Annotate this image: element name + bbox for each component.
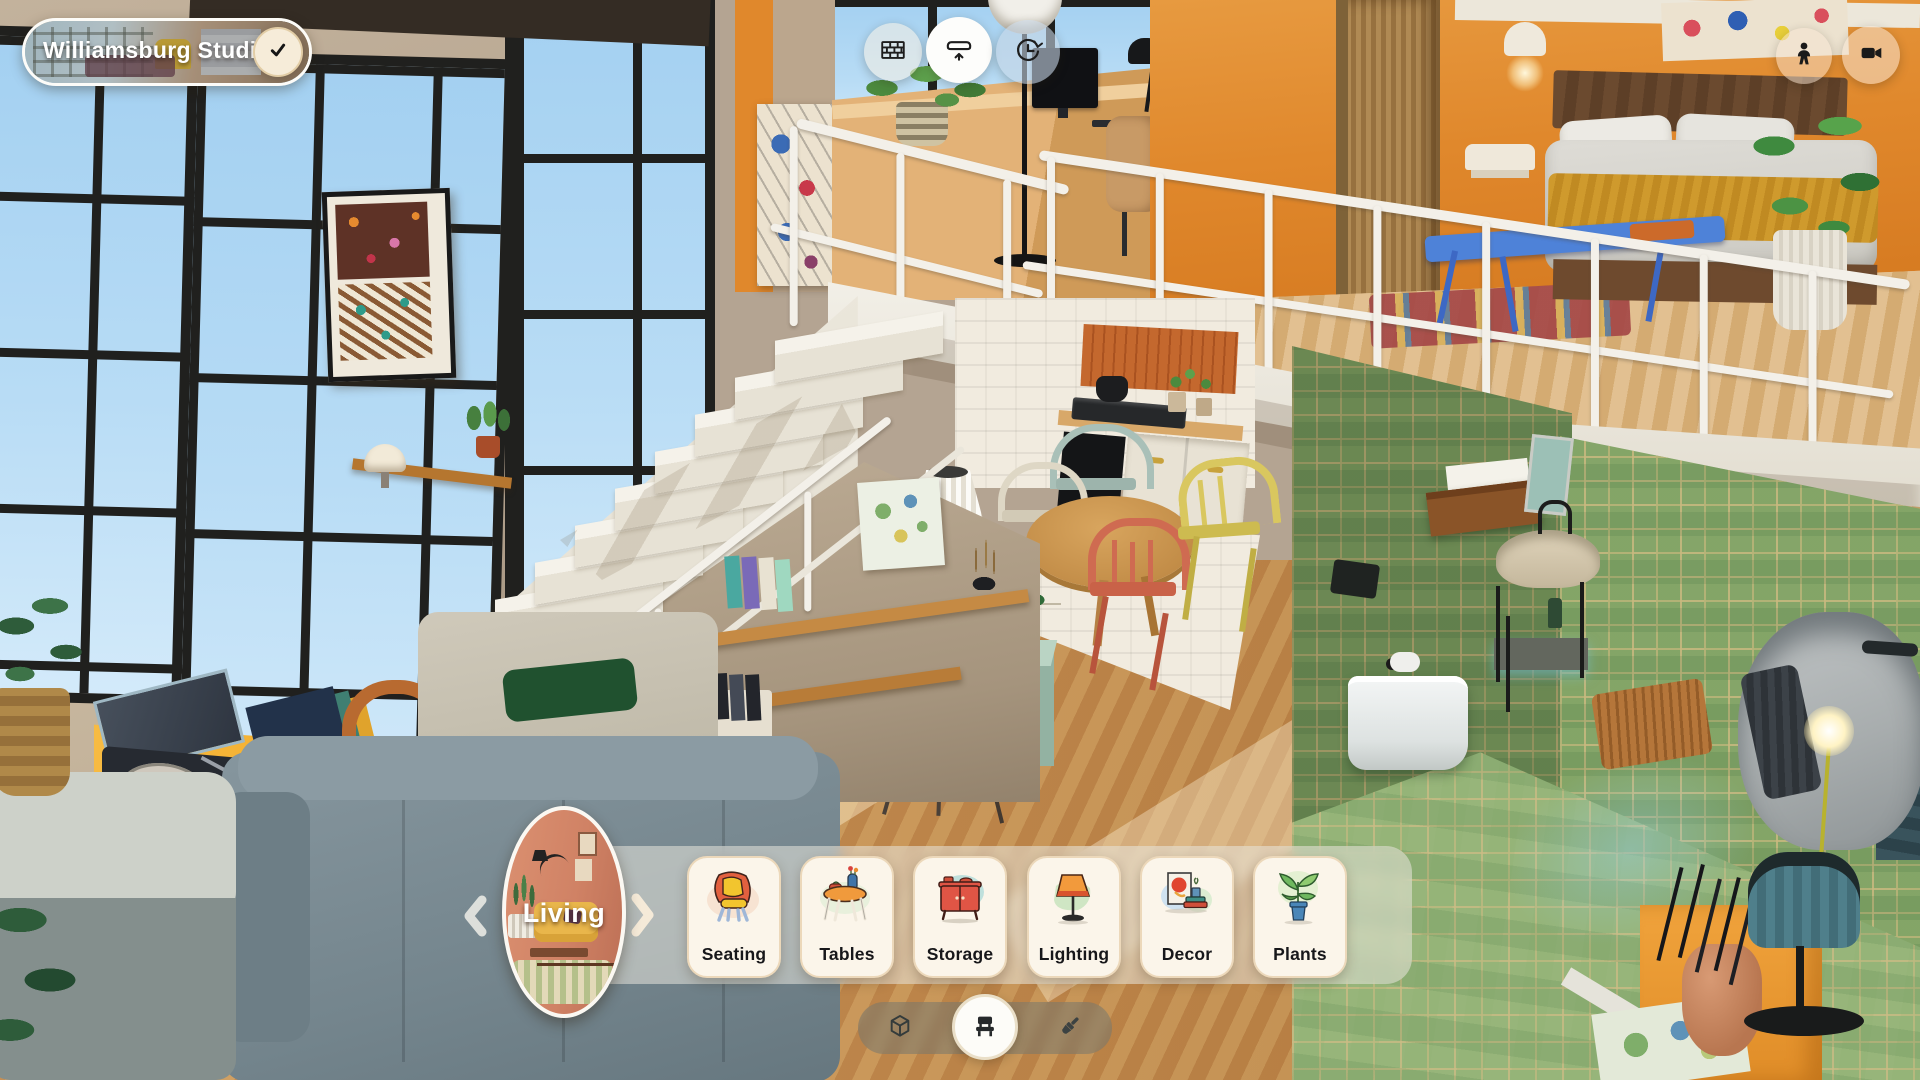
category-label: Storage — [927, 944, 994, 965]
kitchen-herb-pot — [1196, 398, 1212, 416]
kitchen-kettle — [1096, 376, 1128, 402]
bedroom-sconce[interactable] — [1504, 22, 1546, 56]
carousel-next-button[interactable] — [628, 892, 660, 942]
floors-tool-button[interactable] — [926, 17, 992, 83]
dining-chair-coral-seat — [1090, 582, 1176, 596]
walls-tool-button[interactable] — [864, 23, 922, 81]
wall-poster-frame[interactable] — [322, 188, 457, 382]
sconce-glow — [1506, 54, 1544, 92]
bathroom-sink-faucet — [1538, 500, 1572, 534]
poster-top-pattern — [335, 202, 430, 280]
category-label: Plants — [1273, 944, 1327, 965]
room-selector[interactable]: Living — [502, 806, 626, 1018]
dining-chair-coral-back — [1112, 540, 1117, 586]
shelf-vase-branches — [964, 538, 1004, 590]
app-window: Williamsburg Studio — [0, 0, 1920, 1080]
lamp-illustration — [1042, 866, 1104, 933]
person-icon — [1789, 39, 1819, 74]
desk-monitor-stand — [1058, 108, 1068, 118]
clock-rotate-icon — [1012, 34, 1044, 71]
record-view-button[interactable] — [1842, 26, 1900, 84]
project-title: Williamsburg Studio — [25, 37, 271, 64]
potted-plant-illustration — [1268, 866, 1330, 933]
teal-table-lamp-base — [1744, 1006, 1864, 1036]
confirm-button[interactable] — [253, 27, 303, 77]
living-thumb-frames — [578, 832, 597, 856]
category-card-plants[interactable]: Plants — [1253, 856, 1347, 978]
person-view-button[interactable] — [1776, 28, 1832, 84]
build-mode-button[interactable] — [880, 1008, 920, 1048]
round-table-illustration — [815, 866, 877, 933]
category-card-tables[interactable]: Tables — [800, 856, 894, 978]
living-thumb-lamp-shade — [532, 850, 548, 861]
cube-icon — [886, 1012, 914, 1045]
art-and-books-illustration — [1155, 866, 1217, 933]
brick-wall-icon — [878, 35, 908, 70]
category-card-storage[interactable]: Storage — [913, 856, 1007, 978]
understair-art[interactable] — [857, 477, 945, 571]
sink-stand-leg — [1496, 586, 1500, 682]
category-label: Seating — [702, 944, 767, 965]
category-card-decor[interactable]: Decor — [1140, 856, 1234, 978]
brush-vase[interactable] — [1682, 944, 1762, 1056]
sideboard-illustration — [928, 866, 990, 933]
sofa-back-bolster — [238, 736, 818, 800]
bathroom-sink-basin[interactable] — [1496, 530, 1600, 588]
project-pill[interactable]: Williamsburg Studio — [22, 18, 312, 86]
category-label: Decor — [1162, 944, 1213, 965]
carousel-prev-button[interactable] — [462, 894, 492, 942]
video-camera-icon — [1856, 38, 1886, 73]
toilet-paper-holder — [1390, 652, 1420, 672]
category-card-seating[interactable]: Seating — [687, 856, 781, 978]
shelf-plant-leaves — [462, 396, 512, 440]
category-label: Lighting — [1039, 944, 1110, 965]
bed-nightstand[interactable] — [1465, 144, 1535, 170]
dining-chair-coral[interactable] — [1088, 518, 1190, 590]
living-thumb-rug — [512, 960, 612, 1004]
sofa-seam — [402, 772, 405, 1062]
furnish-mode-button[interactable] — [952, 994, 1018, 1060]
mode-toolbar — [858, 1002, 1112, 1054]
kitchen-herb-leaves — [1160, 364, 1220, 398]
chevron-right-icon — [628, 892, 656, 943]
floor-raise-icon — [942, 31, 976, 70]
armchair-illustration — [702, 866, 764, 933]
room-selector-label: Living — [506, 898, 622, 929]
teal-table-lamp-shade[interactable] — [1748, 852, 1860, 948]
basket-plant-leaves — [0, 576, 100, 706]
sink-stand-shelf — [1494, 638, 1588, 670]
paint-mode-button[interactable] — [1050, 1008, 1090, 1048]
glow-lamp-bulb[interactable] — [1804, 706, 1854, 756]
living-thumb-table — [530, 948, 588, 957]
corner-plant-leaves — [0, 860, 120, 1080]
toilet-flush-plate — [1330, 559, 1380, 599]
category-label: Tables — [819, 944, 874, 965]
sink-bottle — [1548, 598, 1562, 628]
poster-bottom-pattern — [338, 282, 433, 361]
paintbrush-icon — [1056, 1012, 1084, 1045]
toilet[interactable] — [1348, 676, 1468, 770]
chevron-left-icon — [462, 894, 488, 943]
chair-icon — [970, 1010, 1000, 1045]
history-tool-button[interactable] — [996, 20, 1060, 84]
shelf-lamp-base — [381, 472, 389, 488]
category-card-lighting[interactable]: Lighting — [1027, 856, 1121, 978]
checkmark-icon — [265, 37, 291, 68]
